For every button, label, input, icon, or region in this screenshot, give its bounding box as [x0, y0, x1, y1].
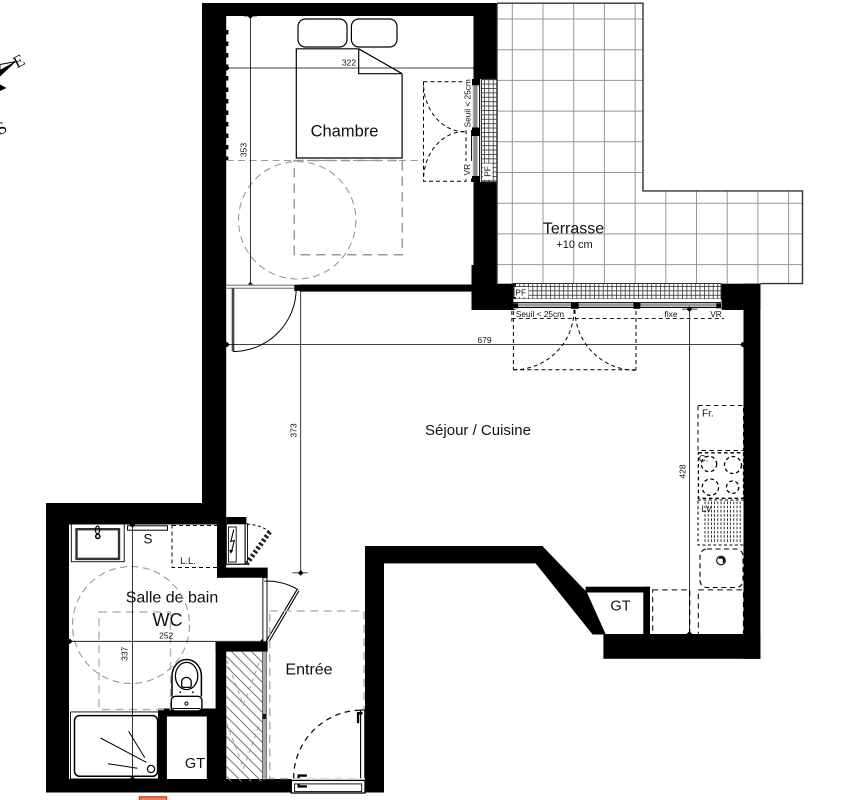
svg-text:Fr.: Fr. [702, 409, 714, 420]
svg-text:373: 373 [289, 423, 299, 437]
svg-text:Entrée: Entrée [285, 662, 332, 679]
svg-text:679: 679 [477, 335, 491, 345]
svg-text:S: S [143, 532, 152, 547]
svg-text:L.L.: L.L. [180, 556, 196, 567]
svg-text:C.: C. [699, 454, 709, 465]
svg-text:LV: LV [702, 504, 712, 514]
svg-text:Seuil < 25cm: Seuil < 25cm [462, 79, 472, 127]
svg-text:Terrasse: Terrasse [543, 221, 604, 238]
svg-text:322: 322 [342, 58, 356, 68]
svg-text:Séjour / Cuisine: Séjour / Cuisine [425, 422, 531, 439]
svg-text:GT: GT [610, 599, 630, 615]
svg-text:+10 cm: +10 cm [556, 239, 592, 251]
svg-text:GT: GT [185, 756, 205, 772]
svg-text:VR: VR [710, 309, 722, 319]
svg-text:252: 252 [159, 630, 173, 640]
svg-text:Salle de bain: Salle de bain [126, 590, 219, 607]
svg-text:353: 353 [238, 143, 248, 157]
svg-text:Chambre: Chambre [311, 123, 379, 141]
svg-text:VR: VR [462, 164, 472, 176]
svg-text:PF: PF [483, 166, 493, 177]
svg-text:428: 428 [678, 464, 688, 478]
svg-text:fixe: fixe [665, 309, 678, 319]
svg-text:PF: PF [515, 287, 526, 297]
svg-text:WC: WC [153, 610, 183, 630]
svg-text:337: 337 [120, 646, 130, 660]
svg-text:Seuil < 25cm: Seuil < 25cm [516, 309, 564, 319]
